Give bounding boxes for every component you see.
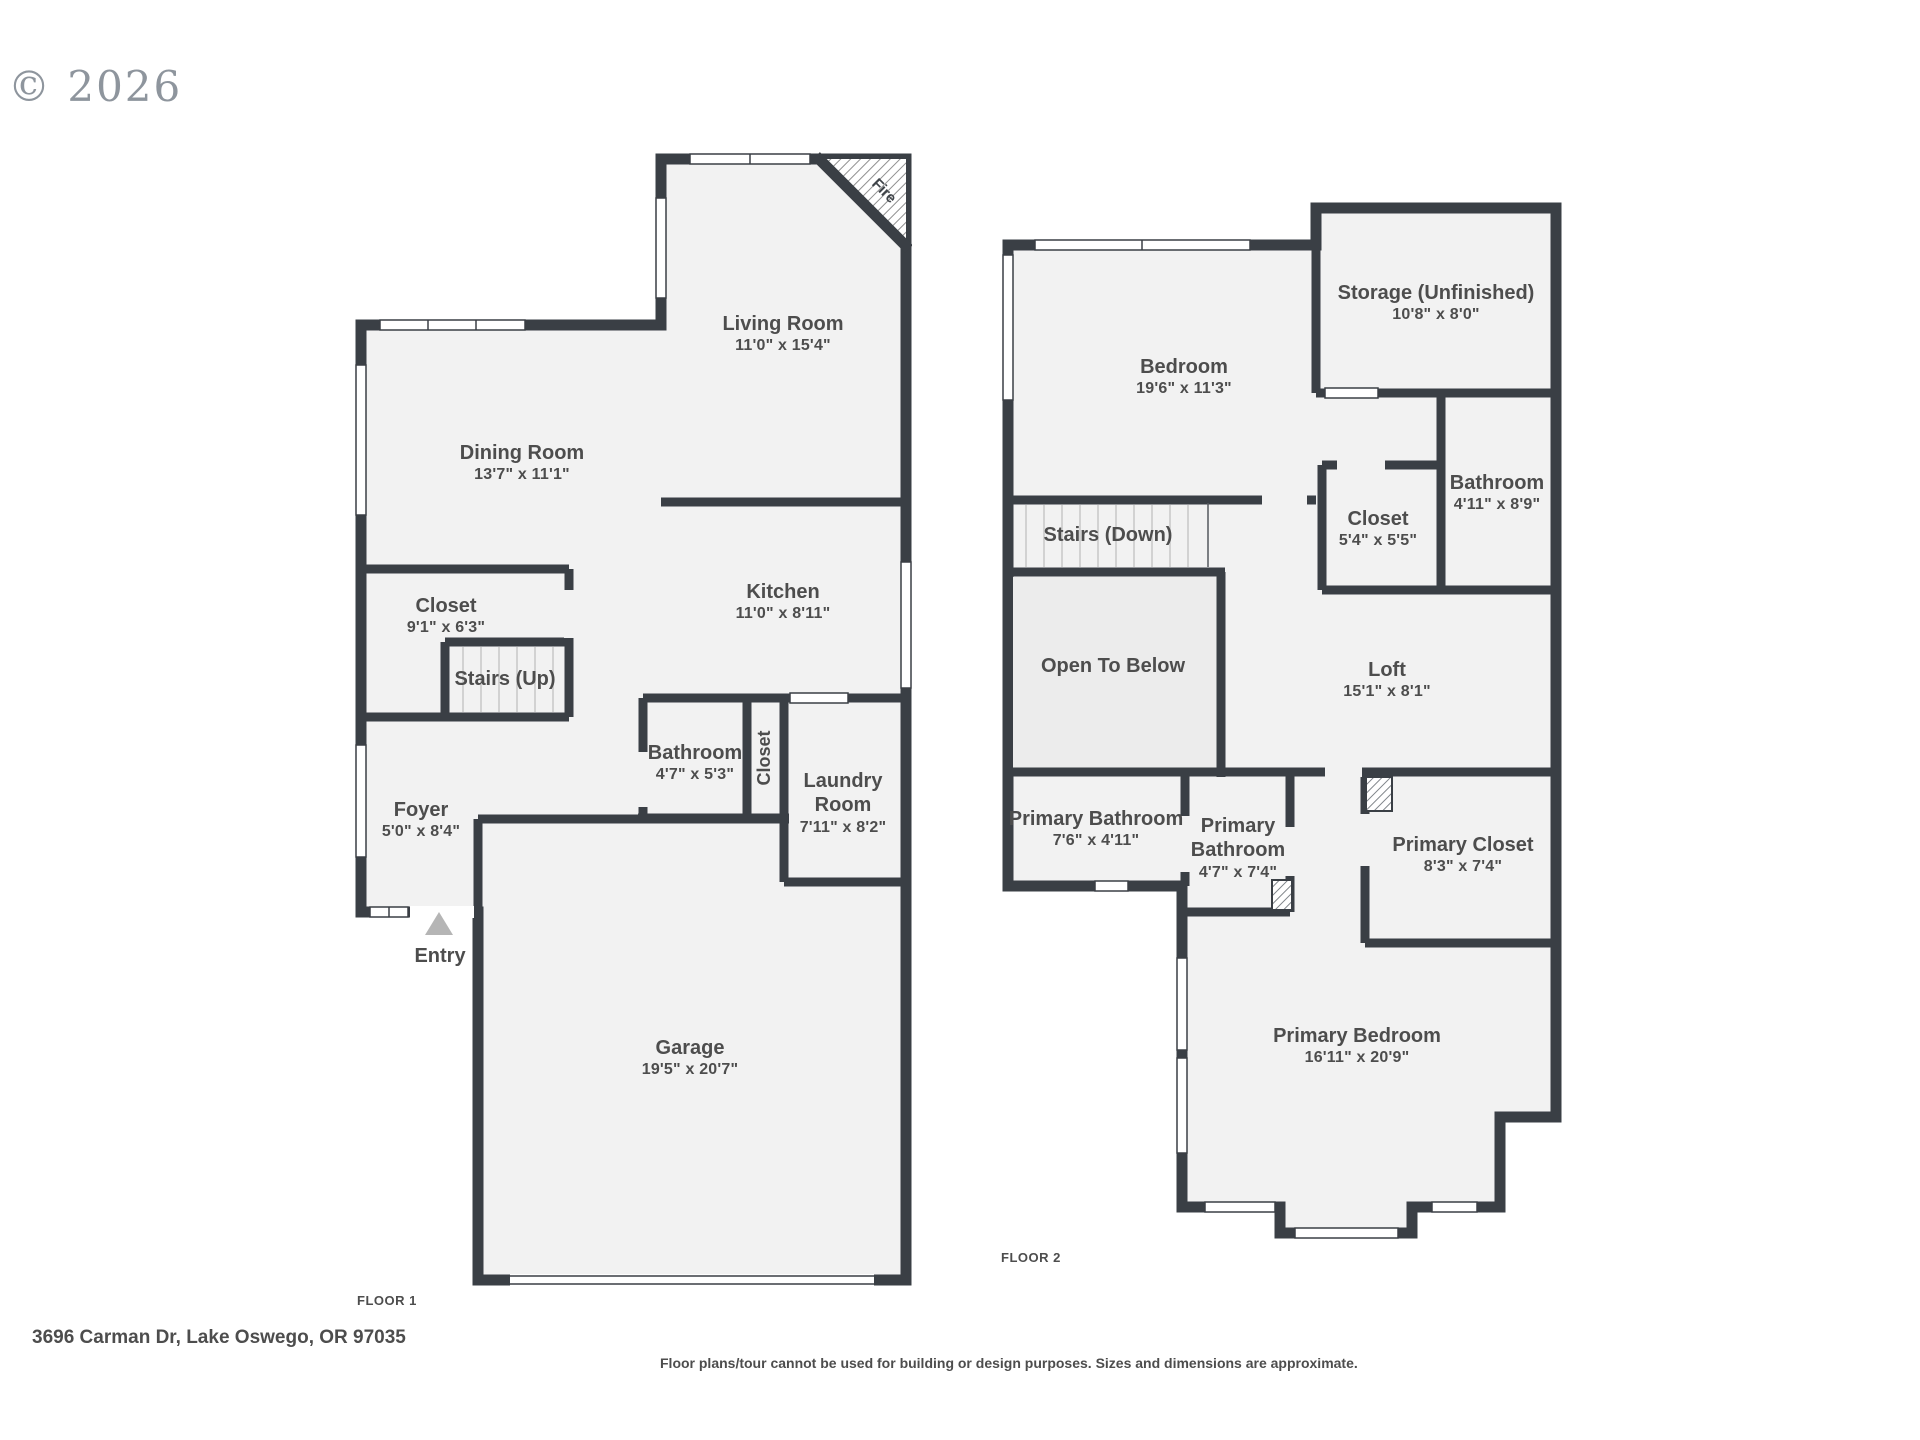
property-address: 3696 Carman Dr, Lake Oswego, OR 97035 — [32, 1327, 406, 1349]
room-label-bedroom: Bedroom 19'6" x 11'3" — [1136, 355, 1232, 399]
room-label-primary-bathroom-2: Primary Bathroom 4'7" x 7'4" — [1188, 814, 1288, 882]
room-label-garage: Garage 19'5" x 20'7" — [642, 1036, 739, 1080]
room-label-foyer: Foyer 5'0" x 8'4" — [382, 798, 460, 842]
room-label-hall-closet: Closet — [754, 730, 776, 785]
copyright-watermark: © 2026 — [8, 62, 182, 111]
floor2-plan — [1000, 200, 1564, 1245]
floor1-tag: FLOOR 1 — [357, 1293, 417, 1308]
room-label-closet-f2: Closet 5'4" x 5'5" — [1339, 507, 1417, 551]
room-label-storage: Storage (Unfinished) 10'8" x 8'0" — [1338, 281, 1535, 325]
room-label-dining-room: Dining Room 13'7" x 11'1" — [460, 441, 584, 485]
room-label-stairs-down: Stairs (Down) — [1044, 523, 1173, 547]
room-label-laundry: Laundry Room 7'11" x 8'2" — [787, 769, 899, 837]
room-label-bathroom-f2: Bathroom 4'11" x 8'9" — [1450, 471, 1544, 515]
room-label-living-room: Living Room 11'0" x 15'4" — [722, 312, 843, 356]
room-label-closet-f1: Closet 9'1" x 6'3" — [407, 594, 485, 638]
entry-label: Entry — [414, 944, 465, 968]
room-label-primary-bedroom: Primary Bedroom 16'11" x 20'9" — [1273, 1024, 1441, 1068]
floorplan-page: © 2026 — [0, 0, 1920, 1440]
open-to-below-label: Open To Below — [1041, 654, 1185, 678]
room-label-primary-bathroom-1: Primary Bathroom 7'6" x 4'11" — [1009, 807, 1184, 851]
disclaimer-text: Floor plans/tour cannot be used for buil… — [660, 1355, 1358, 1371]
entry-door-opening — [410, 906, 474, 918]
room-label-kitchen: Kitchen 11'0" x 8'11" — [736, 580, 831, 624]
room-label-bathroom-f1: Bathroom 4'7" x 5'3" — [648, 741, 742, 785]
room-label-primary-closet: Primary Closet 8'3" x 7'4" — [1392, 833, 1533, 877]
room-label-stairs-up: Stairs (Up) — [454, 667, 555, 691]
room-label-loft: Loft 15'1" x 8'1" — [1343, 658, 1430, 702]
floor2-tag: FLOOR 2 — [1001, 1250, 1061, 1265]
garage-door — [510, 1274, 874, 1286]
